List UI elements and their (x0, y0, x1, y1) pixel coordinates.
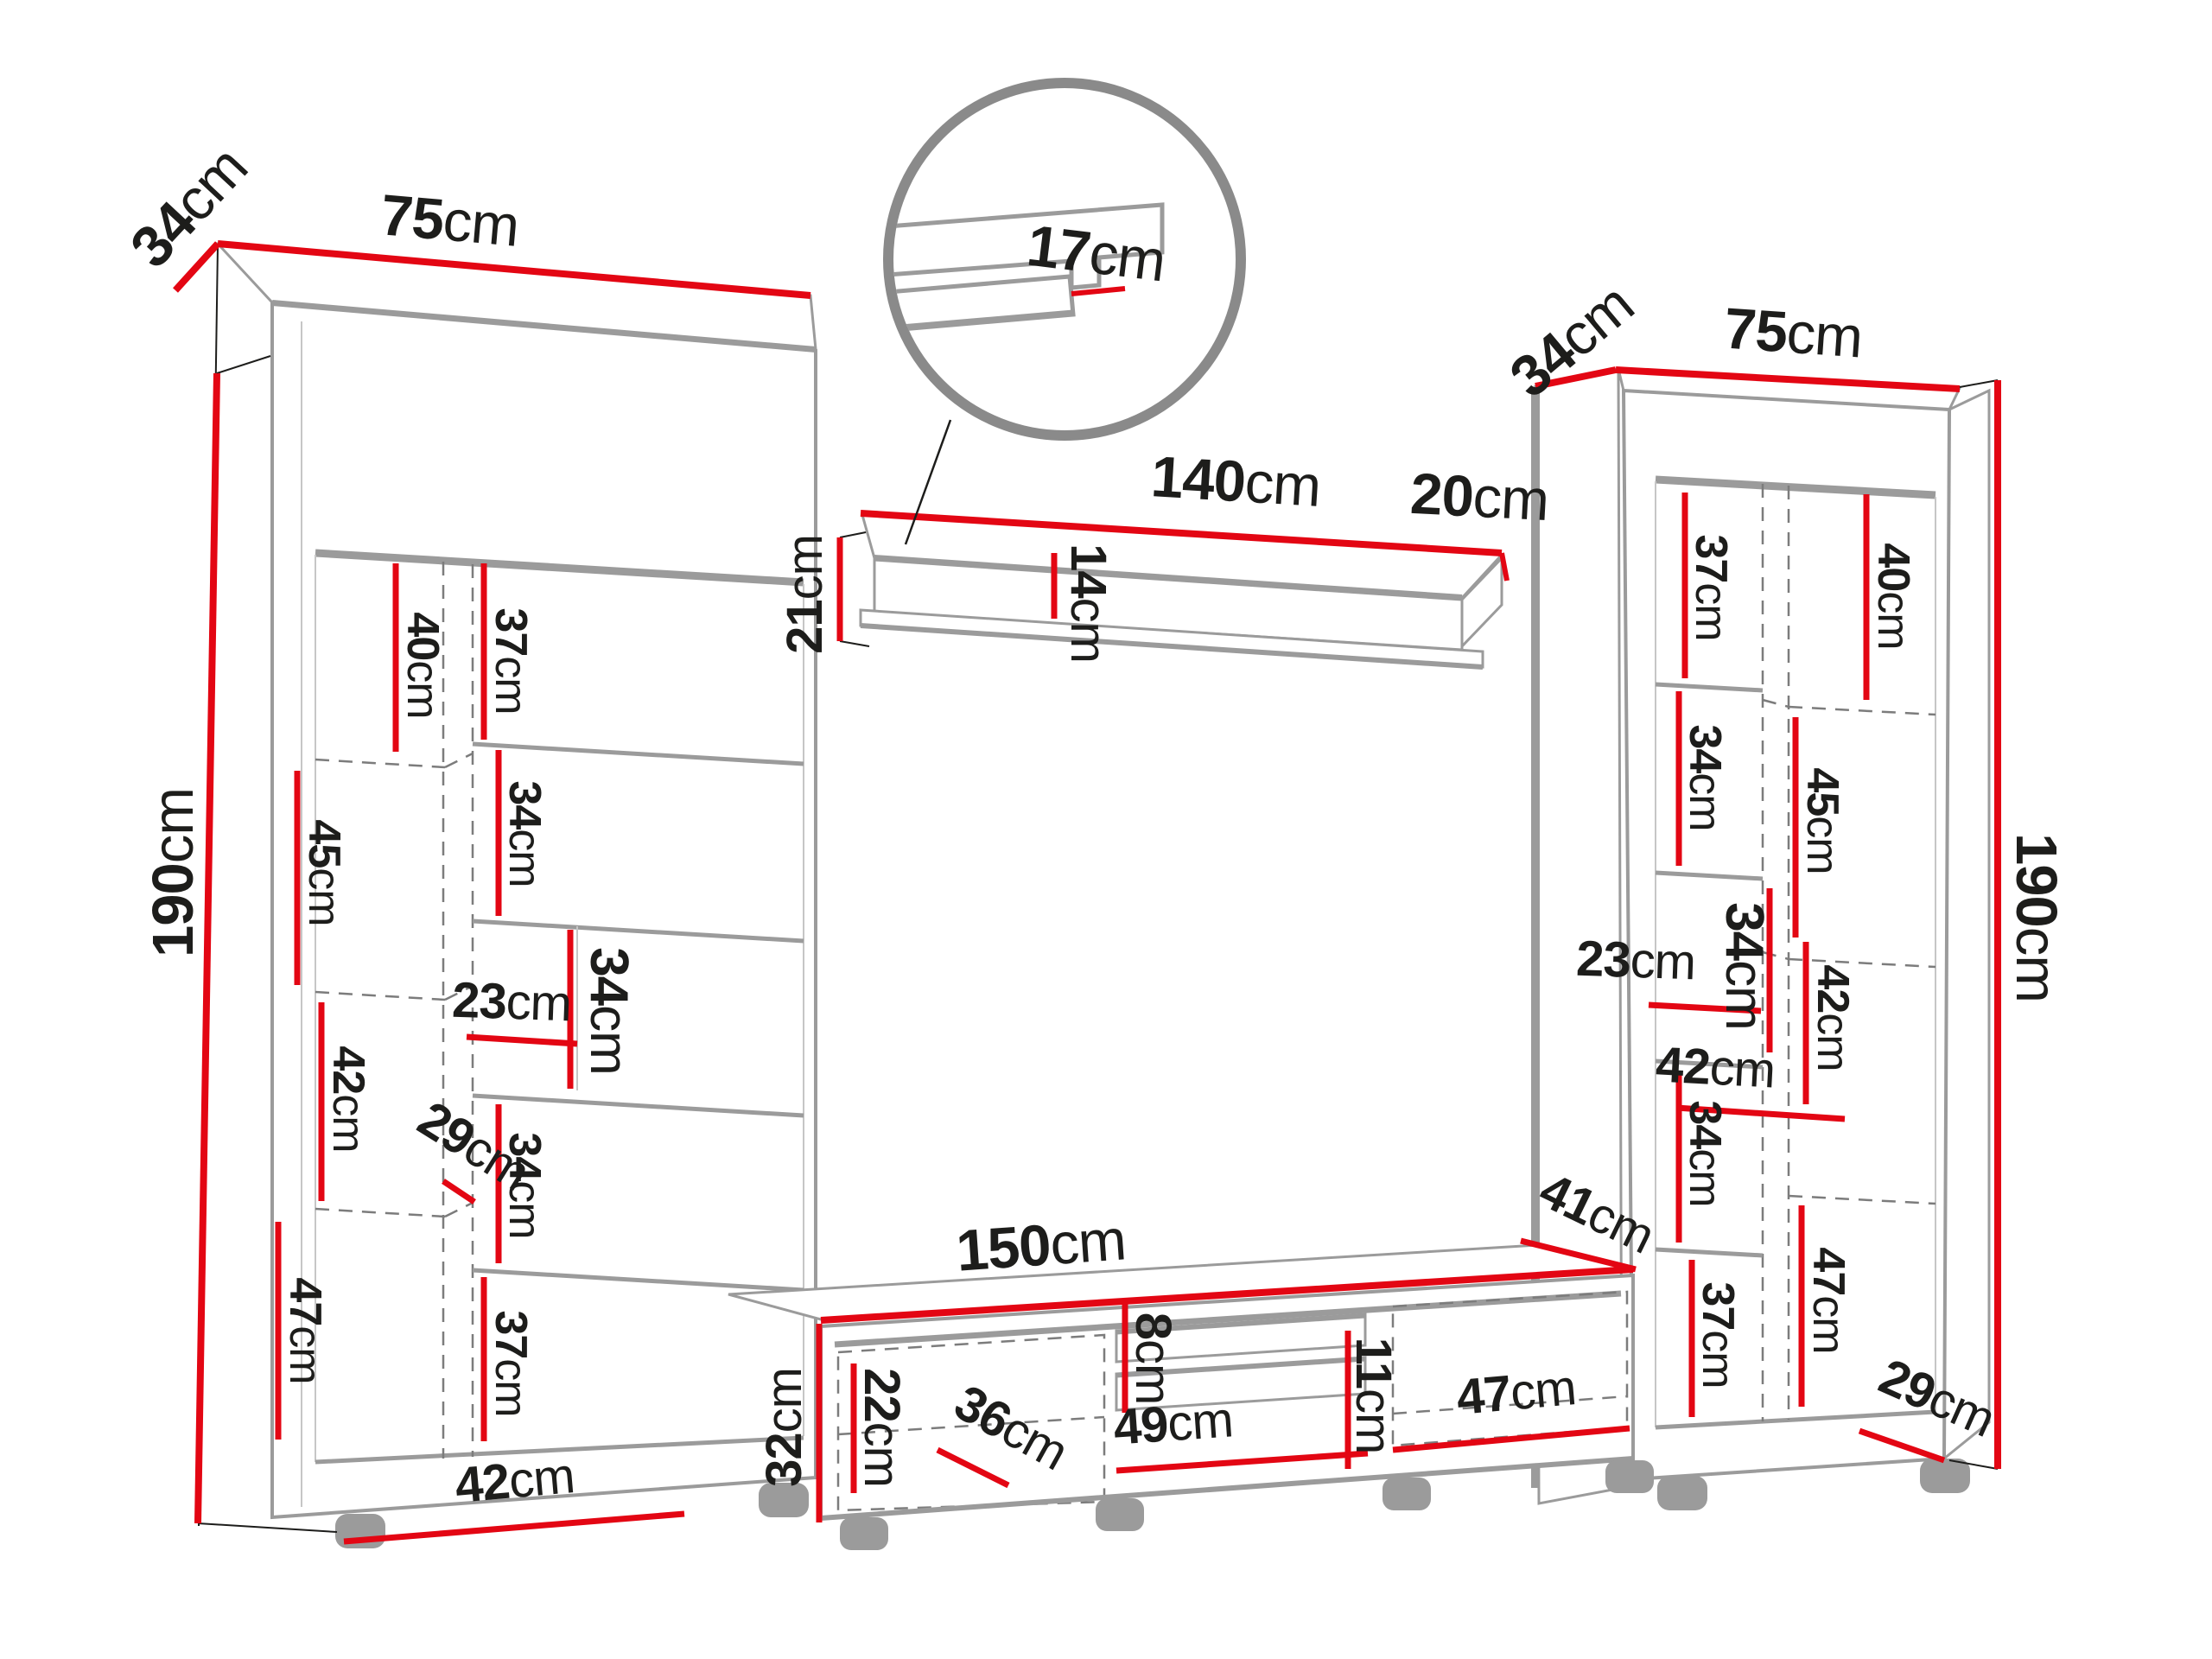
dim-label-right-side-37-bottom: 37cm (1693, 1281, 1743, 1388)
dim-label-shelf-end-depth-20: 20cm (1408, 461, 1550, 533)
tv-stand-foot-4 (1605, 1460, 1654, 1493)
dimension-line-left-door42 (344, 1514, 684, 1541)
dim-label-left-side-34-middle: 34cm (579, 947, 639, 1075)
dim-label-right-cabinet-width: 75cm (1722, 296, 1865, 370)
dim-label-left-cabinet-height: 190cm (141, 788, 206, 957)
shelf-21-tick-bottom (840, 641, 869, 646)
diagram-canvas: 34cm 75cm 190cm 40cm 45cm 42cm 47cm 37cm… (0, 0, 2212, 1659)
left-cabinet-foot-left (335, 1514, 385, 1548)
wall-shelf: 140cm 20cm 21cm 14cm (777, 444, 1550, 667)
dim-label-left-col-40: 40cm (397, 612, 448, 718)
dim-label-tv-niche-11: 11cm (1345, 1338, 1402, 1454)
dim-label-left-door-42: 42cm (453, 1447, 576, 1514)
tv-stand-foot-2 (1096, 1498, 1144, 1531)
dim-label-left-cabinet-width: 75cm (378, 182, 522, 259)
dim-label-right-col-42: 42cm (1808, 964, 1858, 1071)
dim-label-tv-width-150: 150cm (954, 1207, 1128, 1283)
tv-stand-foot-1 (840, 1517, 888, 1550)
left-height-tick-bottom (198, 1523, 337, 1532)
dim-label-left-niche-23: 23cm (451, 972, 572, 1033)
left-height-tick-top (217, 356, 270, 373)
dim-label-right-side-34-lower: 34cm (1680, 1100, 1730, 1206)
right-cabinet-right-side-face (1944, 391, 1989, 1459)
dim-label-tv-niche-8: 8cm (1125, 1313, 1181, 1405)
dim-label-left-col-42: 42cm (323, 1046, 373, 1152)
dim-label-right-col-47: 47cm (1803, 1247, 1853, 1353)
tv-stand: 150cm 41cm 32cm 22cm 36cm 8cm 49cm 11cm … (728, 1162, 1662, 1550)
dim-label-left-side-37-top: 37cm (486, 607, 536, 714)
dim-label-right-side-37-top: 37cm (1686, 534, 1736, 640)
dim-label-shelf-length-140: 140cm (1149, 444, 1322, 519)
dim-label-right-col-40: 40cm (1868, 543, 1918, 649)
right-cabinet-foot-right (1920, 1459, 1970, 1493)
dim-label-left-col-47: 47cm (280, 1277, 330, 1383)
tv-stand-foot-3 (1382, 1478, 1431, 1510)
dim-label-right-width-42: 42cm (1655, 1037, 1777, 1099)
left-cabinet: 34cm 75cm 190cm 40cm 45cm 42cm 47cm 37cm… (118, 135, 816, 1548)
dim-label-shelf-inner-14: 14cm (1060, 543, 1116, 663)
dim-label-tv-niche-49: 49cm (1112, 1392, 1235, 1456)
dim-label-right-side-34-upper: 34cm (1680, 724, 1730, 830)
dim-label-right-col-45: 45cm (1797, 767, 1847, 874)
dim-label-right-niche-23: 23cm (1575, 931, 1696, 991)
dim-label-left-side-34-upper: 34cm (499, 780, 550, 887)
right-cabinet-foot-left (1657, 1476, 1707, 1510)
dim-label-left-col-45: 45cm (299, 819, 349, 925)
dim-label-right-side-34-middle: 34cm (1714, 902, 1774, 1030)
dim-label-tv-door-22: 22cm (854, 1368, 910, 1487)
dim-label-left-side-37-bottom: 37cm (486, 1310, 536, 1416)
shelf-21-tick-top (840, 532, 866, 537)
dim-label-right-cabinet-height: 190cm (2004, 833, 2069, 1002)
dim-label-tv-door-47: 47cm (1454, 1359, 1578, 1426)
dim-label-shelf-end-height-21: 21cm (777, 535, 833, 654)
furniture-dimension-diagram: 34cm 75cm 190cm 40cm 45cm 42cm 47cm 37cm… (0, 0, 2212, 1659)
left-cabinet-front-face (272, 304, 816, 1517)
right-height-tick-top (1960, 380, 1998, 387)
left-cabinet-foot-right (759, 1483, 809, 1517)
dim-label-tv-height-32: 32cm (756, 1368, 812, 1487)
